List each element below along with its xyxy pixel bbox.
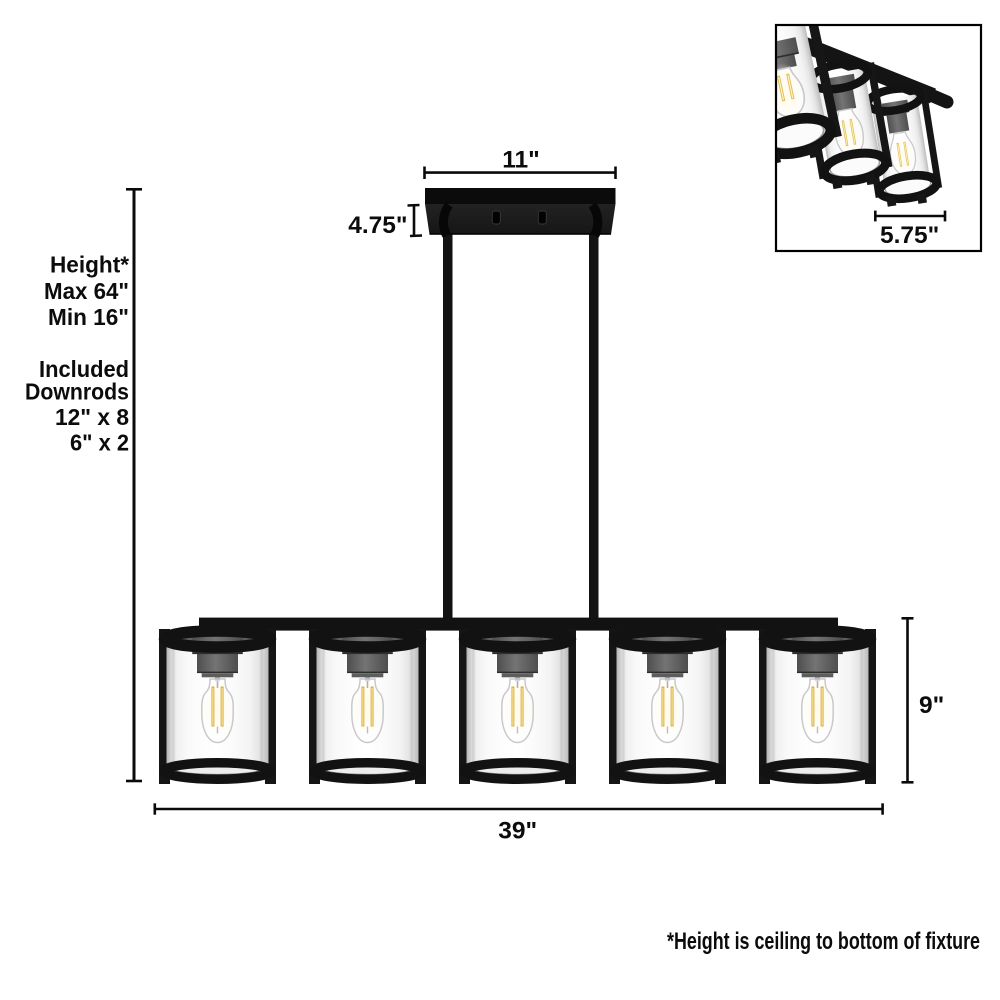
svg-text:4.75": 4.75" — [348, 212, 407, 239]
svg-text:*Height is ceiling to bottom o: *Height is ceiling to bottom of fixture — [667, 928, 980, 955]
svg-text:Max 64": Max 64" — [44, 278, 129, 304]
svg-text:5.75": 5.75" — [880, 222, 939, 249]
svg-text:9": 9" — [919, 692, 944, 719]
svg-text:39": 39" — [498, 817, 537, 844]
svg-text:11": 11" — [502, 147, 540, 174]
svg-text:6" x 2: 6" x 2 — [70, 430, 129, 456]
svg-text:Downrods: Downrods — [25, 379, 129, 405]
svg-text:Min 16": Min 16" — [48, 304, 129, 330]
svg-text:12" x 8: 12" x 8 — [55, 404, 129, 430]
svg-text:Height*: Height* — [50, 252, 129, 278]
